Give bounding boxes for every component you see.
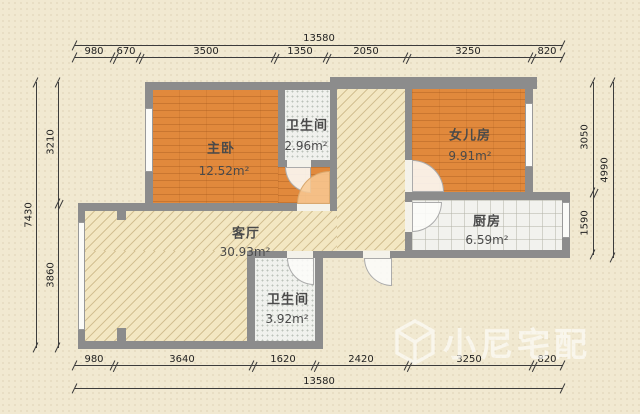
dim-bottom-seg-1: 3640 — [169, 354, 194, 365]
dim-line-left-chain — [58, 82, 59, 348]
dim-top-seg-1: 670 — [116, 46, 135, 57]
dim-left-seg-0: 3210 — [46, 129, 57, 154]
wall-kitchen-bottom — [405, 250, 570, 258]
dim-right-seg-1: 1590 — [580, 210, 591, 235]
dim-tick — [610, 252, 616, 262]
room-area-kitchen: 6.59m² — [465, 233, 508, 247]
window-master-bedroom — [145, 108, 153, 172]
wall-ensuite-right — [330, 77, 337, 210]
wall-stub-upper — [117, 208, 126, 220]
dim-top-seg-0: 980 — [84, 46, 103, 57]
dim-tick — [560, 383, 566, 393]
door-opening-master — [297, 203, 330, 211]
dim-tick — [560, 40, 566, 50]
room-label-kitchen: 厨房 — [473, 211, 501, 230]
dim-bottom-seg-5: 820 — [537, 354, 556, 365]
dim-left-seg-1: 3860 — [46, 262, 57, 287]
room-label-guest-bath: 卫生间 — [267, 289, 309, 308]
room-label-daughter-room: 女儿房 — [449, 125, 491, 144]
floor-living-room-lower — [85, 251, 247, 341]
wall-stub-lower — [117, 328, 126, 342]
dim-tick — [33, 342, 39, 352]
dim-tick — [560, 52, 566, 62]
dim-bottom-seg-4: 3250 — [456, 354, 481, 365]
room-area-ensuite-bath: 2.96m² — [284, 139, 327, 153]
wall-guestbath-left — [247, 251, 255, 348]
dim-line-right-chain — [593, 82, 594, 255]
dim-bottom-seg-0: 980 — [84, 354, 103, 365]
dim-line-left-total — [36, 82, 37, 348]
dim-top-seg-2: 3500 — [193, 46, 218, 57]
window-daughter-room — [525, 103, 533, 167]
dim-left-total: 7430 — [24, 202, 35, 227]
dim-tick — [560, 360, 566, 370]
wall-daughter-kitchen — [405, 192, 570, 200]
brand-cube-icon — [394, 319, 436, 365]
room-label-ensuite-bath: 卫生间 — [286, 115, 328, 134]
door-opening-guestbath — [287, 251, 313, 258]
floor-plan-canvas: 主卧 12.52m² 卫生间 2.96m² 女儿房 9.91m² 厨房 6.59… — [0, 0, 640, 414]
room-label-living-room: 客厅 — [232, 223, 260, 242]
dim-bottom-seg-2: 1620 — [270, 354, 295, 365]
dim-right-total: 4990 — [600, 157, 611, 182]
door-arc-entry — [364, 258, 392, 286]
door-opening-daughter — [405, 160, 412, 192]
dim-bottom-seg-3: 2420 — [348, 354, 373, 365]
wall-top-left — [145, 82, 337, 90]
watermark: 小尼宅配 — [394, 318, 591, 366]
wall-ensuite-left — [278, 82, 285, 167]
dim-top-total: 13580 — [303, 33, 335, 44]
dim-top-seg-3: 1350 — [287, 46, 312, 57]
window-living-room — [78, 222, 85, 330]
dim-bottom-total: 13580 — [303, 376, 335, 387]
window-kitchen — [562, 202, 570, 238]
room-area-master-bedroom: 12.52m² — [199, 164, 250, 178]
dim-top-seg-6: 820 — [537, 46, 556, 57]
door-opening-entry — [363, 251, 390, 258]
room-area-guest-bath: 3.92m² — [265, 312, 308, 326]
wall-living-step — [78, 203, 152, 211]
door-opening-ensuite — [287, 160, 311, 167]
door-opening-kitchen — [405, 202, 412, 232]
dim-top-seg-4: 2050 — [353, 46, 378, 57]
room-label-master-bedroom: 主卧 — [207, 138, 235, 157]
dim-line-top-total — [75, 45, 563, 46]
wall-top-right — [330, 77, 537, 89]
dim-right-seg-0: 3050 — [580, 124, 591, 149]
dim-line-top-chain — [75, 57, 563, 58]
dim-line-bottom-total — [75, 388, 563, 389]
wall-bottom — [78, 341, 323, 349]
room-area-living-room: 30.93m² — [220, 245, 271, 259]
dim-tick — [55, 342, 61, 352]
dim-top-seg-5: 3250 — [455, 46, 480, 57]
room-area-daughter-room: 9.91m² — [448, 149, 491, 163]
wall-guestbath-right — [315, 251, 323, 348]
floor-corridor — [337, 89, 405, 250]
dim-line-bottom-chain — [75, 365, 563, 366]
dim-tick — [590, 249, 596, 259]
dim-line-right-total — [613, 82, 614, 258]
